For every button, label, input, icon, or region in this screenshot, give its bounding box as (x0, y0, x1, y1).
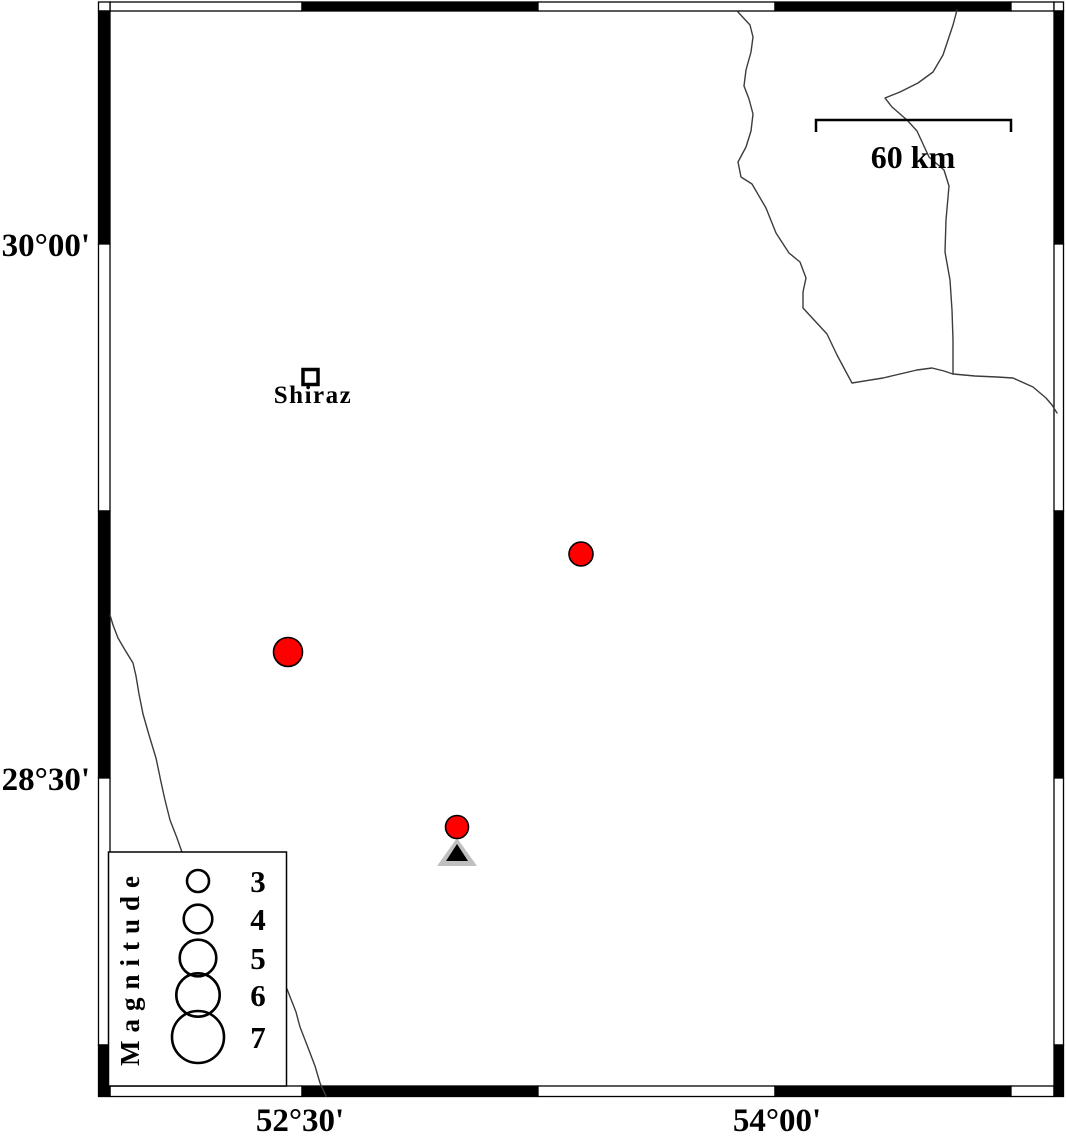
river-line (953, 374, 1057, 413)
frame-left-segment (99, 11, 111, 244)
frame-corner (1054, 2, 1064, 11)
earthquake-marker (446, 816, 469, 839)
frame-right-segment (1054, 1045, 1064, 1097)
scale-bar: 60 km (816, 120, 1011, 175)
legend-title: Magnitude (115, 868, 145, 1066)
lat-label: 28°30' (2, 762, 90, 798)
frame-top-segment (1011, 2, 1054, 11)
city-marker-square (303, 370, 318, 385)
frame-top-segment (110, 2, 302, 11)
frame-bottom-segment (775, 1086, 1011, 1097)
frame-bottom-segment (538, 1086, 775, 1097)
legend-magnitude-label: 4 (250, 902, 266, 937)
frame-bottom-segment (1011, 1086, 1054, 1097)
seismicity-map: 60 km Shiraz Magnitude 3 4 5 6 7 30°00' … (0, 0, 1066, 1136)
frame-left-segment (99, 511, 111, 778)
frame-right-segment (1054, 511, 1064, 778)
frame-corner (99, 2, 111, 11)
frame-left-segment (99, 244, 111, 511)
frame-right-segment (1054, 244, 1064, 511)
earthquake-markers (274, 542, 594, 839)
earthquake-marker (569, 542, 593, 566)
scale-bar-label: 60 km (871, 139, 956, 175)
earthquake-marker (274, 638, 303, 667)
legend-magnitude-label: 5 (250, 941, 266, 976)
lon-label: 52°30' (256, 1103, 344, 1136)
frame-top-segment (538, 2, 775, 11)
river-line (885, 10, 957, 374)
station-marker (437, 838, 477, 866)
frame-bottom-segment (302, 1086, 538, 1097)
magnitude-legend: Magnitude 3 4 5 6 7 (109, 852, 287, 1086)
frame-right-segment (1054, 11, 1064, 244)
frame-right-segment (1054, 778, 1064, 1045)
legend-magnitude-label: 7 (250, 1020, 266, 1055)
lat-label: 30°00' (2, 228, 90, 264)
frame-bottom-segment (110, 1086, 302, 1097)
frame-top-segment (302, 2, 538, 11)
river-line (738, 12, 953, 383)
lon-label: 54°00' (733, 1103, 821, 1136)
legend-magnitude-label: 3 (250, 864, 266, 899)
city-shiraz: Shiraz (274, 370, 352, 410)
scale-bar-bracket (816, 120, 1011, 132)
frame-top-segment (775, 2, 1011, 11)
legend-magnitude-label: 6 (250, 978, 266, 1013)
